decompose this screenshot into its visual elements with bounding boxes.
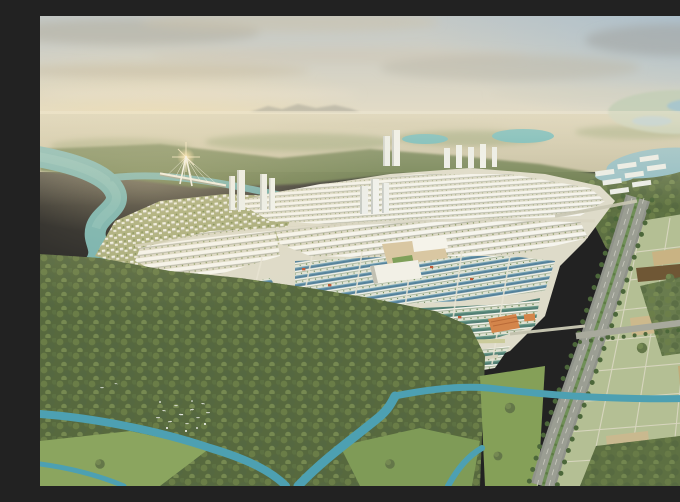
aerial-city-render (40, 16, 680, 486)
golden-light-wash (40, 56, 410, 316)
